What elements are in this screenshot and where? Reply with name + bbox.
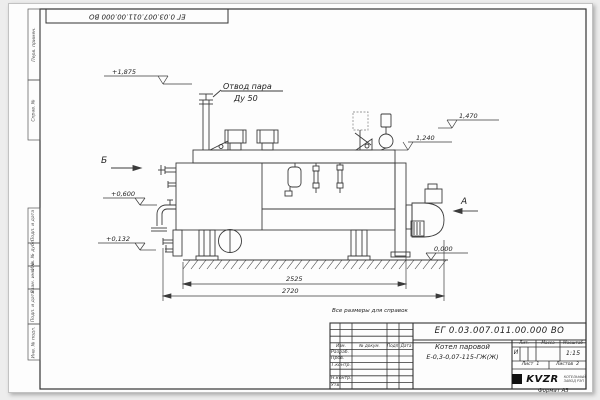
company-name: KVZR (526, 374, 558, 385)
row-utv: Утв. (331, 384, 341, 389)
left-side-fittings (151, 165, 176, 252)
elev-0600: +0,600 (111, 190, 135, 198)
col-podp: Подп. (387, 344, 399, 348)
boiler-body (176, 150, 410, 257)
callout-steam-outlet: Отвод пара (223, 82, 272, 91)
kvzr-logo-icon (512, 374, 522, 384)
margin-cell-podp-data-2: Подп. и дата (28, 289, 40, 324)
top-hatches (210, 130, 278, 150)
margin-cell-inv-podl: Инв. № подл. (28, 324, 40, 360)
burner (406, 184, 444, 237)
format-label: Формат А3 (538, 389, 569, 395)
col-izm-list: Изм. (330, 344, 352, 348)
sheet-number-cell: Лист 1 (512, 361, 549, 369)
margin-cell-perv-primen: Перв. примен. (28, 9, 40, 80)
col-docnum: № докум. (352, 344, 387, 348)
row-tkontr: Т.контр. (331, 364, 351, 369)
manhole (219, 230, 242, 253)
elev-1875: +1,875 (112, 68, 136, 76)
row-prov: Пров. (331, 357, 344, 362)
elev-0132: +0,132 (106, 235, 130, 243)
margin-cell-podp-data-1: Подп. и дата (28, 208, 40, 243)
scale-value: 1:15 (560, 350, 586, 357)
view-label-b: Б (101, 156, 107, 166)
margin-cell-sprav-no: Справ. № (28, 80, 40, 140)
view-arrow-b (111, 166, 141, 171)
dimension-lines (163, 240, 444, 301)
boiler-supports (173, 230, 370, 260)
product-name-2: Е-0,3-0,07-115-ГЖ(Ж) (413, 354, 512, 361)
top-stamp-text: ЕГ 0.03.007.011.00.000 ВО (89, 12, 186, 19)
dim-2525: 2525 (286, 275, 303, 283)
view-label-a: А (460, 197, 467, 207)
product-name-cell: Котел паровой Е-0,3-0,07-115-ГЖ(Ж) (413, 344, 512, 370)
dim-2720: 2720 (282, 287, 299, 295)
reference-note: Все размеры для справок (332, 309, 408, 315)
water-gauge-fittings (285, 163, 343, 196)
callout-dn50: Ду 50 (233, 94, 258, 103)
doc-number-cell: ЕГ 0.03.007.011.00.000 ВО (413, 323, 586, 340)
ground-line (183, 260, 448, 269)
row-razrab: Разраб. (331, 351, 349, 356)
top-stamp: ЕГ 0.03.007.011.00.000 ВО (46, 9, 228, 23)
safety-valve (353, 112, 372, 150)
product-name-1: Котел паровой (413, 344, 512, 351)
pressure-gauge (379, 114, 393, 150)
lit-value: И (512, 350, 520, 356)
elev-1470: 1,470 (459, 112, 478, 120)
drawing-canvas: Отвод пара Ду 50 Б А +1,875 1,470 1,240 … (0, 0, 600, 400)
elev-0000: 0,000 (434, 245, 453, 253)
elev-1240: 1,240 (416, 134, 435, 142)
col-data: Дата (399, 344, 413, 348)
company-logo-cell: KVZR КОТЕЛЬНЫЙ ЗАВОД РЭП (512, 369, 586, 389)
scale-label: Масштаб (560, 341, 586, 345)
row-nkontr: Н.контр. (331, 377, 352, 382)
lit-label: Лит. (512, 341, 536, 345)
mass-label: Масса (536, 341, 560, 345)
margin-cell-vzam-inv: Взам. инв. № (28, 266, 40, 289)
doc-number: ЕГ 0.03.007.011.00.000 ВО (435, 327, 565, 336)
sheets-total-cell: Листов 2 (549, 361, 586, 369)
view-arrow-a (454, 209, 478, 214)
